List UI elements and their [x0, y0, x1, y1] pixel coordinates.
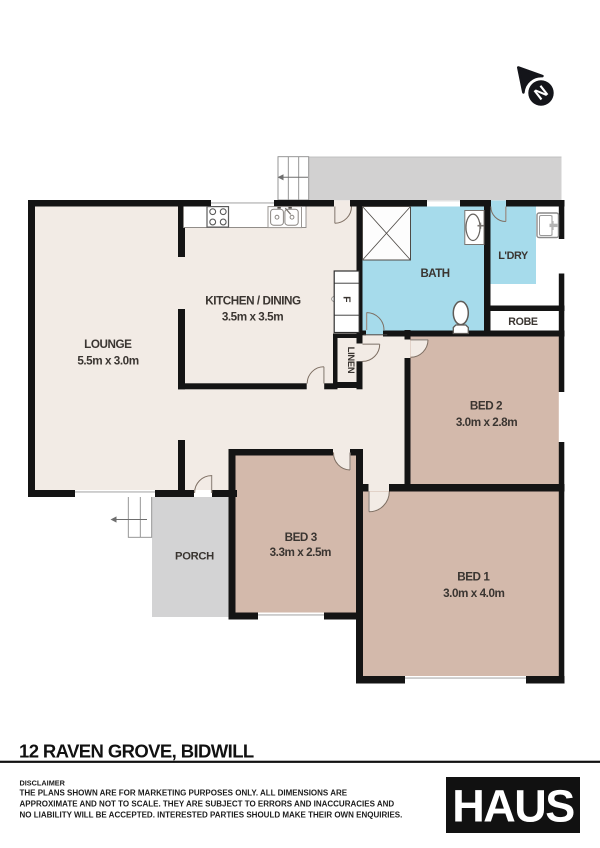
- svg-text:KITCHEN / DINING: KITCHEN / DINING: [205, 295, 301, 308]
- svg-text:PORCH: PORCH: [175, 550, 214, 562]
- svg-text:3.0m x 2.8m: 3.0m x 2.8m: [456, 416, 517, 429]
- svg-text:HAUS: HAUS: [452, 781, 574, 832]
- svg-text:3.5m x 3.5m: 3.5m x 3.5m: [222, 310, 283, 323]
- svg-text:5.5m x 3.0m: 5.5m x 3.0m: [77, 355, 138, 368]
- svg-text:3.0m x 4.0m: 3.0m x 4.0m: [443, 587, 504, 600]
- svg-text:DISCLAIMER: DISCLAIMER: [20, 779, 66, 788]
- svg-text:NO LIABILITY WILL BE ACCEPTED.: NO LIABILITY WILL BE ACCEPTED. INTERESTE…: [20, 811, 403, 820]
- svg-text:LINEN: LINEN: [346, 347, 357, 374]
- svg-text:BATH: BATH: [420, 268, 449, 280]
- svg-text:THE PLANS SHOWN ARE FOR MARKET: THE PLANS SHOWN ARE FOR MARKETING PURPOS…: [20, 789, 348, 798]
- svg-text:BED 1: BED 1: [457, 571, 490, 584]
- svg-text:F: F: [341, 296, 353, 303]
- svg-text:12 RAVEN GROVE, BIDWILL: 12 RAVEN GROVE, BIDWILL: [19, 741, 254, 762]
- svg-text:L'DRY: L'DRY: [498, 250, 529, 262]
- svg-text:3.3m x 2.5m: 3.3m x 2.5m: [270, 546, 331, 559]
- svg-text:BED 3: BED 3: [285, 531, 318, 544]
- svg-text:APPROXIMATE AND NOT TO SCALE.: APPROXIMATE AND NOT TO SCALE. THEY ARE S…: [20, 800, 395, 809]
- svg-text:BED 2: BED 2: [470, 399, 503, 412]
- svg-text:LOUNGE: LOUNGE: [84, 338, 132, 351]
- svg-text:ROBE: ROBE: [508, 316, 538, 328]
